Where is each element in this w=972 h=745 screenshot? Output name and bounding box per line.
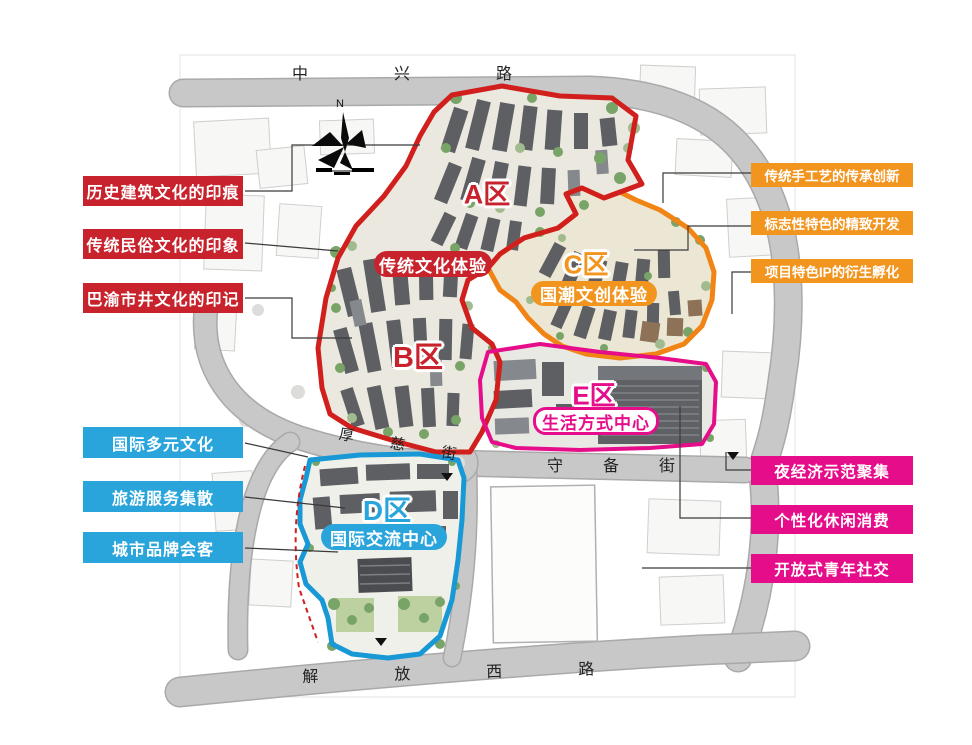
zone-a-theme-pill: 传统文化体验: [374, 251, 492, 277]
road-label-zhongxing: 中兴路: [292, 60, 598, 84]
masterplan-map: 中兴路 厚慈街 守备街 解放西路 N A区 B区 C区 D区 E区 传统文化体验…: [0, 0, 972, 745]
zone-c-theme-pill: 国潮文创体验: [531, 281, 657, 306]
compass-north-label: N: [336, 98, 344, 110]
zone-c-label: C区: [564, 245, 609, 282]
callout-city-brand: 城市品牌会客: [83, 532, 243, 563]
callout-bayu-culture: 巴渝市井文化的印记: [83, 283, 243, 313]
callout-landmark-development: 标志性特色的精致开发: [751, 211, 913, 235]
callout-history-architecture: 历史建筑文化的印痕: [83, 176, 243, 206]
zone-b-label: B区: [393, 334, 443, 376]
callout-night-economy: 夜经济示范聚集: [751, 456, 913, 485]
map-graphic: [0, 0, 972, 745]
road-label-shoubei: 守备街: [547, 452, 715, 476]
callout-international-culture: 国际多元文化: [83, 427, 243, 458]
zone-d-label: D区: [363, 489, 411, 529]
zone-d-theme-pill: 国际交流中心: [321, 524, 447, 550]
zone-a-label: A区: [464, 173, 511, 212]
callout-tourism-service: 旅游服务集散: [83, 481, 243, 512]
callout-folk-culture: 传统民俗文化的印象: [83, 229, 243, 259]
callout-ip-incubation: 项目特色IP的衍生孵化: [751, 259, 913, 283]
zone-e-theme-pill: 生活方式中心: [533, 407, 659, 435]
callout-youth-social: 开放式青年社交: [751, 554, 913, 583]
callout-handicraft-heritage: 传统手工艺的传承创新: [751, 163, 913, 187]
callout-personal-leisure: 个性化休闲消费: [751, 505, 913, 534]
